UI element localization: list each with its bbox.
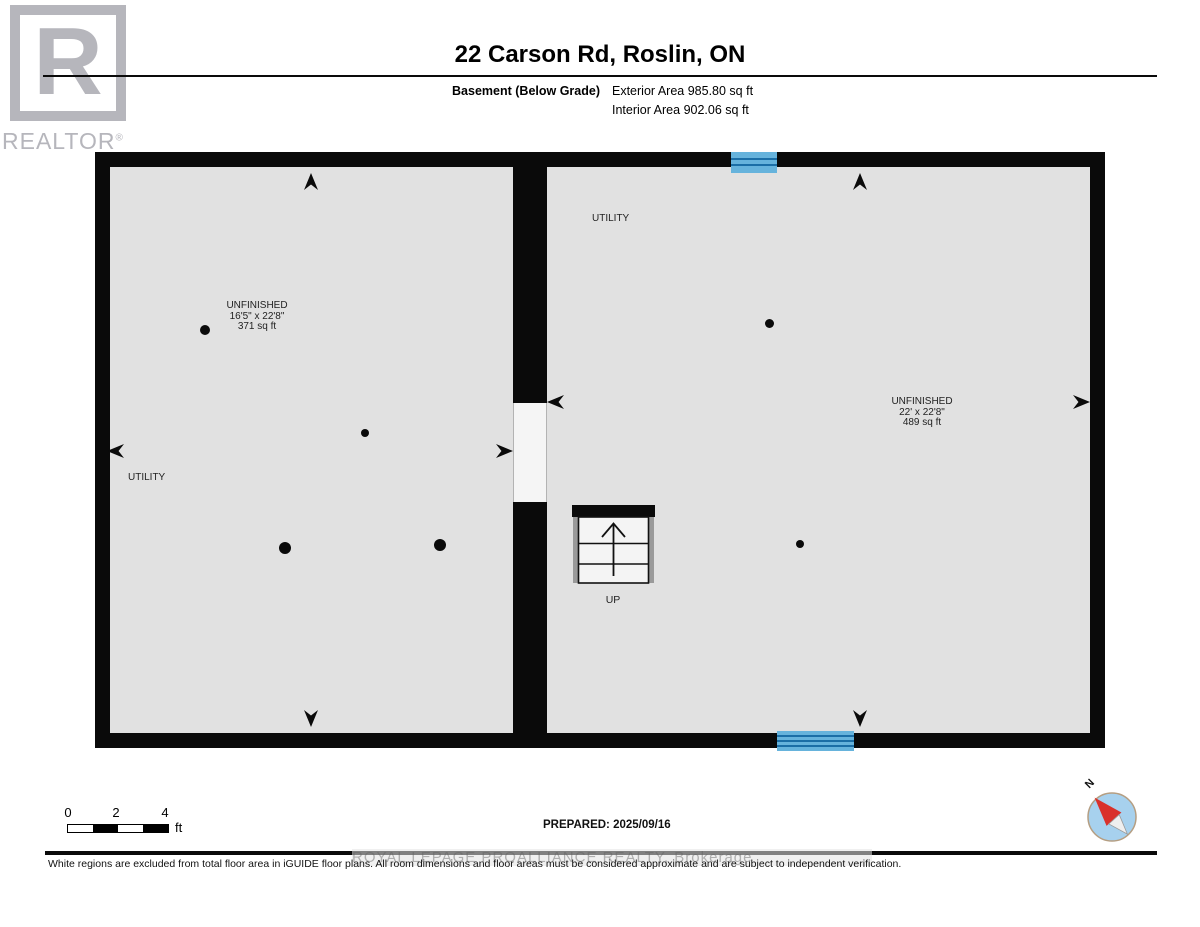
floor-label: Basement (Below Grade) xyxy=(330,84,600,98)
scale-segment xyxy=(143,825,168,832)
post-dot xyxy=(434,539,446,551)
realtor-logo-r-icon: R xyxy=(33,8,102,115)
utility-label-left: UTILITY xyxy=(128,473,188,484)
window-pane-line xyxy=(731,164,777,166)
scale-segment xyxy=(93,825,118,832)
scale-segment xyxy=(118,825,143,832)
room-label-left: UNFINISHED 16'5" x 22'8" 371 sq ft xyxy=(197,301,317,333)
post-dot xyxy=(796,540,804,548)
post-dot xyxy=(765,319,774,328)
realtor-logo: R xyxy=(10,5,126,121)
window-pane-line xyxy=(731,158,777,160)
disclaimer-text: White regions are excluded from total fl… xyxy=(48,858,998,870)
post-dot xyxy=(279,542,291,554)
middle-wall-bottom xyxy=(513,502,547,748)
registered-mark: ® xyxy=(116,132,124,143)
realtor-logo-wordmark: REALTOR® xyxy=(2,128,152,155)
scale-segment xyxy=(68,825,93,832)
post-dot xyxy=(200,325,210,335)
stairs-up-label: UP xyxy=(593,594,633,606)
window-top xyxy=(731,152,777,173)
room-name: UNFINISHED xyxy=(862,397,982,408)
wall-opening xyxy=(513,403,547,502)
room-area: 371 sq ft xyxy=(197,322,317,333)
window-bottom xyxy=(777,731,854,751)
header-divider xyxy=(43,75,1157,77)
middle-wall-top xyxy=(513,152,547,403)
room-label-right: UNFINISHED 22' x 22'8" 489 sq ft xyxy=(862,397,982,429)
floorplan-page: R REALTOR® 22 Carson Rd, Roslin, ON Base… xyxy=(0,0,1200,927)
scale-tick-2: 2 xyxy=(110,805,122,820)
scale-tick-0: 0 xyxy=(62,805,74,820)
scale-unit: ft xyxy=(175,820,182,835)
post-dot xyxy=(361,429,369,437)
interior-area: Interior Area 902.06 sq ft xyxy=(612,103,749,117)
window-pane-line xyxy=(777,735,854,737)
scale-bar xyxy=(67,824,169,833)
floor-plan: UP UNFINISHED 16'5" x 22'8" 371 sq ft UT… xyxy=(95,152,1105,748)
room-area: 489 sq ft xyxy=(862,418,982,429)
exterior-area: Exterior Area 985.80 sq ft xyxy=(612,84,753,98)
page-title: 22 Carson Rd, Roslin, ON xyxy=(300,41,900,69)
window-pane-line xyxy=(777,745,854,747)
utility-label-right: UTILITY xyxy=(592,214,652,225)
stairs-icon xyxy=(572,505,655,585)
plan-interior xyxy=(110,167,1090,733)
realtor-logo-text: REALTOR xyxy=(2,128,116,154)
scale-tick-4: 4 xyxy=(159,805,171,820)
prepared-date: PREPARED: 2025/09/16 xyxy=(543,819,671,831)
window-pane-line xyxy=(777,740,854,742)
room-name: UNFINISHED xyxy=(197,301,317,312)
